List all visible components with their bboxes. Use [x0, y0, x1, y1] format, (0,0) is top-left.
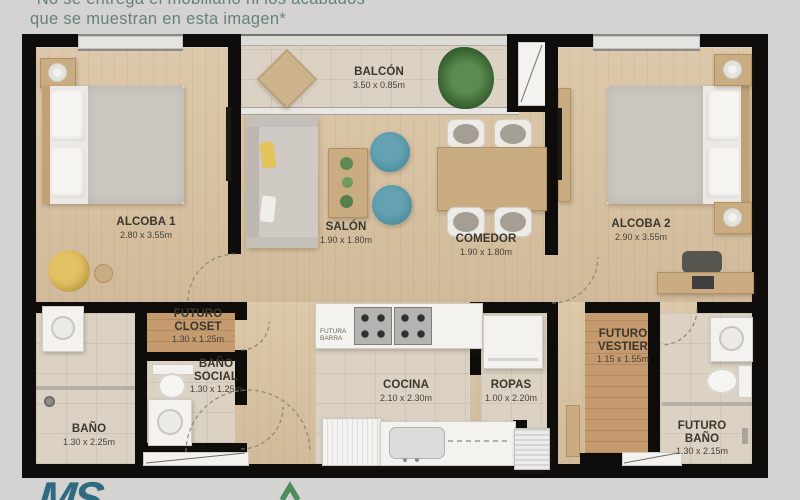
- floor-plan-page: *No se entrega el mobiliario ni los acab…: [0, 0, 800, 500]
- chevron-up-icon[interactable]: [282, 487, 298, 500]
- vanity-sink: [148, 399, 192, 446]
- room-label-cocina: COCINA 2.10 x 2.30m: [380, 379, 432, 403]
- headboard: [42, 86, 50, 204]
- duvet: [607, 86, 703, 204]
- shower-glass: [662, 402, 752, 406]
- duvet: [88, 86, 184, 204]
- stove: [394, 307, 432, 345]
- window-alcoba1: [78, 34, 183, 51]
- bed-alcoba2: [607, 86, 749, 204]
- sink-bowl: [157, 409, 183, 435]
- disclaimer-line1: *No se entrega el mobiliario ni los acab…: [30, 0, 365, 9]
- faucet: [415, 458, 419, 462]
- wall-alcoba2-divider: [545, 34, 558, 255]
- bed-alcoba1: [42, 86, 184, 204]
- tv-alcoba2: [558, 108, 562, 180]
- balcony-glass-door: [241, 107, 519, 115]
- shower-head-icon: [44, 396, 55, 407]
- toilet-bowl: [706, 368, 738, 394]
- wall: [22, 34, 36, 478]
- washing-machine: [483, 315, 543, 369]
- toilet-bowl: [158, 373, 186, 399]
- chair-cushion: [453, 212, 479, 232]
- dining-chair: [494, 119, 532, 149]
- lamp: [48, 63, 67, 82]
- coffee-table: [328, 148, 368, 218]
- throw-pillow-white: [260, 195, 277, 222]
- chair-cushion: [500, 212, 526, 232]
- water-heater: [514, 428, 550, 470]
- tv-alcoba1: [226, 107, 231, 181]
- sofa-back: [246, 116, 259, 248]
- wall: [697, 302, 752, 313]
- futura-barra-label: FUTURA BARRA: [320, 328, 352, 342]
- wall: [235, 302, 247, 320]
- wall: [22, 34, 78, 47]
- plant-decor: [340, 195, 353, 208]
- desk-chair: [682, 251, 722, 273]
- wall: [22, 464, 768, 478]
- wall: [700, 34, 752, 47]
- door-leaf: [566, 405, 580, 457]
- fridge: [322, 418, 382, 466]
- room-label-salon: SALÓN 1.90 x 1.80m: [320, 221, 372, 245]
- lamp: [723, 208, 742, 227]
- laptop: [692, 276, 714, 289]
- pillow: [52, 91, 85, 141]
- chair-cushion: [500, 124, 526, 144]
- disclaimer-text: *No se entrega el mobiliario ni los acab…: [30, 0, 365, 29]
- room-label-futuro-bano: FUTURO BAÑO 1.30 x 2.15m: [673, 420, 731, 456]
- disclaimer-line2: que se muestran en esta imagen*: [30, 9, 365, 29]
- wall: [585, 302, 660, 313]
- pillow: [52, 148, 85, 198]
- accent-chair: [48, 250, 90, 292]
- room-label-bano: BAÑO 1.30 x 2.25m: [63, 423, 115, 447]
- pillow: [706, 148, 739, 198]
- wall: [470, 302, 558, 313]
- towel-rack-icon: [742, 428, 748, 444]
- plant-decor: [342, 177, 353, 188]
- sink-bowl: [51, 316, 75, 340]
- balcony-railing: [241, 34, 520, 46]
- side-table: [94, 264, 113, 283]
- dining-table: [437, 147, 547, 211]
- potted-plant: [438, 47, 494, 109]
- desk: [657, 272, 754, 294]
- kitchen-island: FUTURA BARRA: [315, 303, 483, 349]
- stove: [354, 307, 392, 345]
- room-label-bano-social: BAÑO SOCIAL 1.30 x 1.25m: [190, 358, 242, 394]
- pillow: [706, 91, 739, 141]
- room-label-futuro-closet: FUTURO CLOSET 1.30 x 1.25m: [169, 308, 227, 344]
- pouf: [372, 185, 412, 225]
- room-label-futuro-vestier: FUTURO VESTIER 1.15 x 1.55m: [594, 328, 652, 364]
- kitchen-counter: [380, 421, 516, 466]
- throw-pillow-yellow: [259, 141, 276, 169]
- kitchen-sink: [389, 427, 445, 459]
- vanity-sink: [710, 317, 753, 362]
- entry-door: [143, 452, 249, 466]
- lamp: [723, 60, 742, 79]
- headboard: [741, 86, 749, 204]
- toilet-tank: [738, 365, 752, 398]
- plant-decor: [340, 157, 353, 170]
- chair-cushion: [453, 124, 479, 144]
- window-alcoba2: [593, 34, 700, 51]
- room-label-ropas: ROPAS 1.00 x 2.20m: [485, 379, 537, 403]
- balcony-end-panel: [518, 42, 546, 106]
- washer-detail: [488, 358, 538, 361]
- sink-bowl: [719, 326, 744, 351]
- wall: [135, 302, 147, 464]
- room-label-comedor: COMEDOR 1.90 x 1.80m: [456, 233, 517, 257]
- room-label-alcoba1: ALCOBA 1 2.80 x 3.55m: [116, 216, 175, 240]
- vanity-sink: [42, 306, 84, 352]
- brand-logo: MS: [35, 471, 104, 500]
- pouf: [370, 132, 410, 172]
- room-label-balcon: BALCÓN 3.50 x 0.85m: [353, 66, 405, 90]
- shower-glass: [36, 386, 135, 390]
- sofa-armrest: [246, 237, 318, 248]
- wall: [752, 34, 768, 478]
- faucet: [403, 458, 407, 462]
- sofa-armrest: [246, 116, 318, 127]
- dining-chair: [447, 119, 485, 149]
- sofa: [246, 116, 318, 248]
- room-label-alcoba2: ALCOBA 2 2.90 x 3.55m: [611, 218, 670, 242]
